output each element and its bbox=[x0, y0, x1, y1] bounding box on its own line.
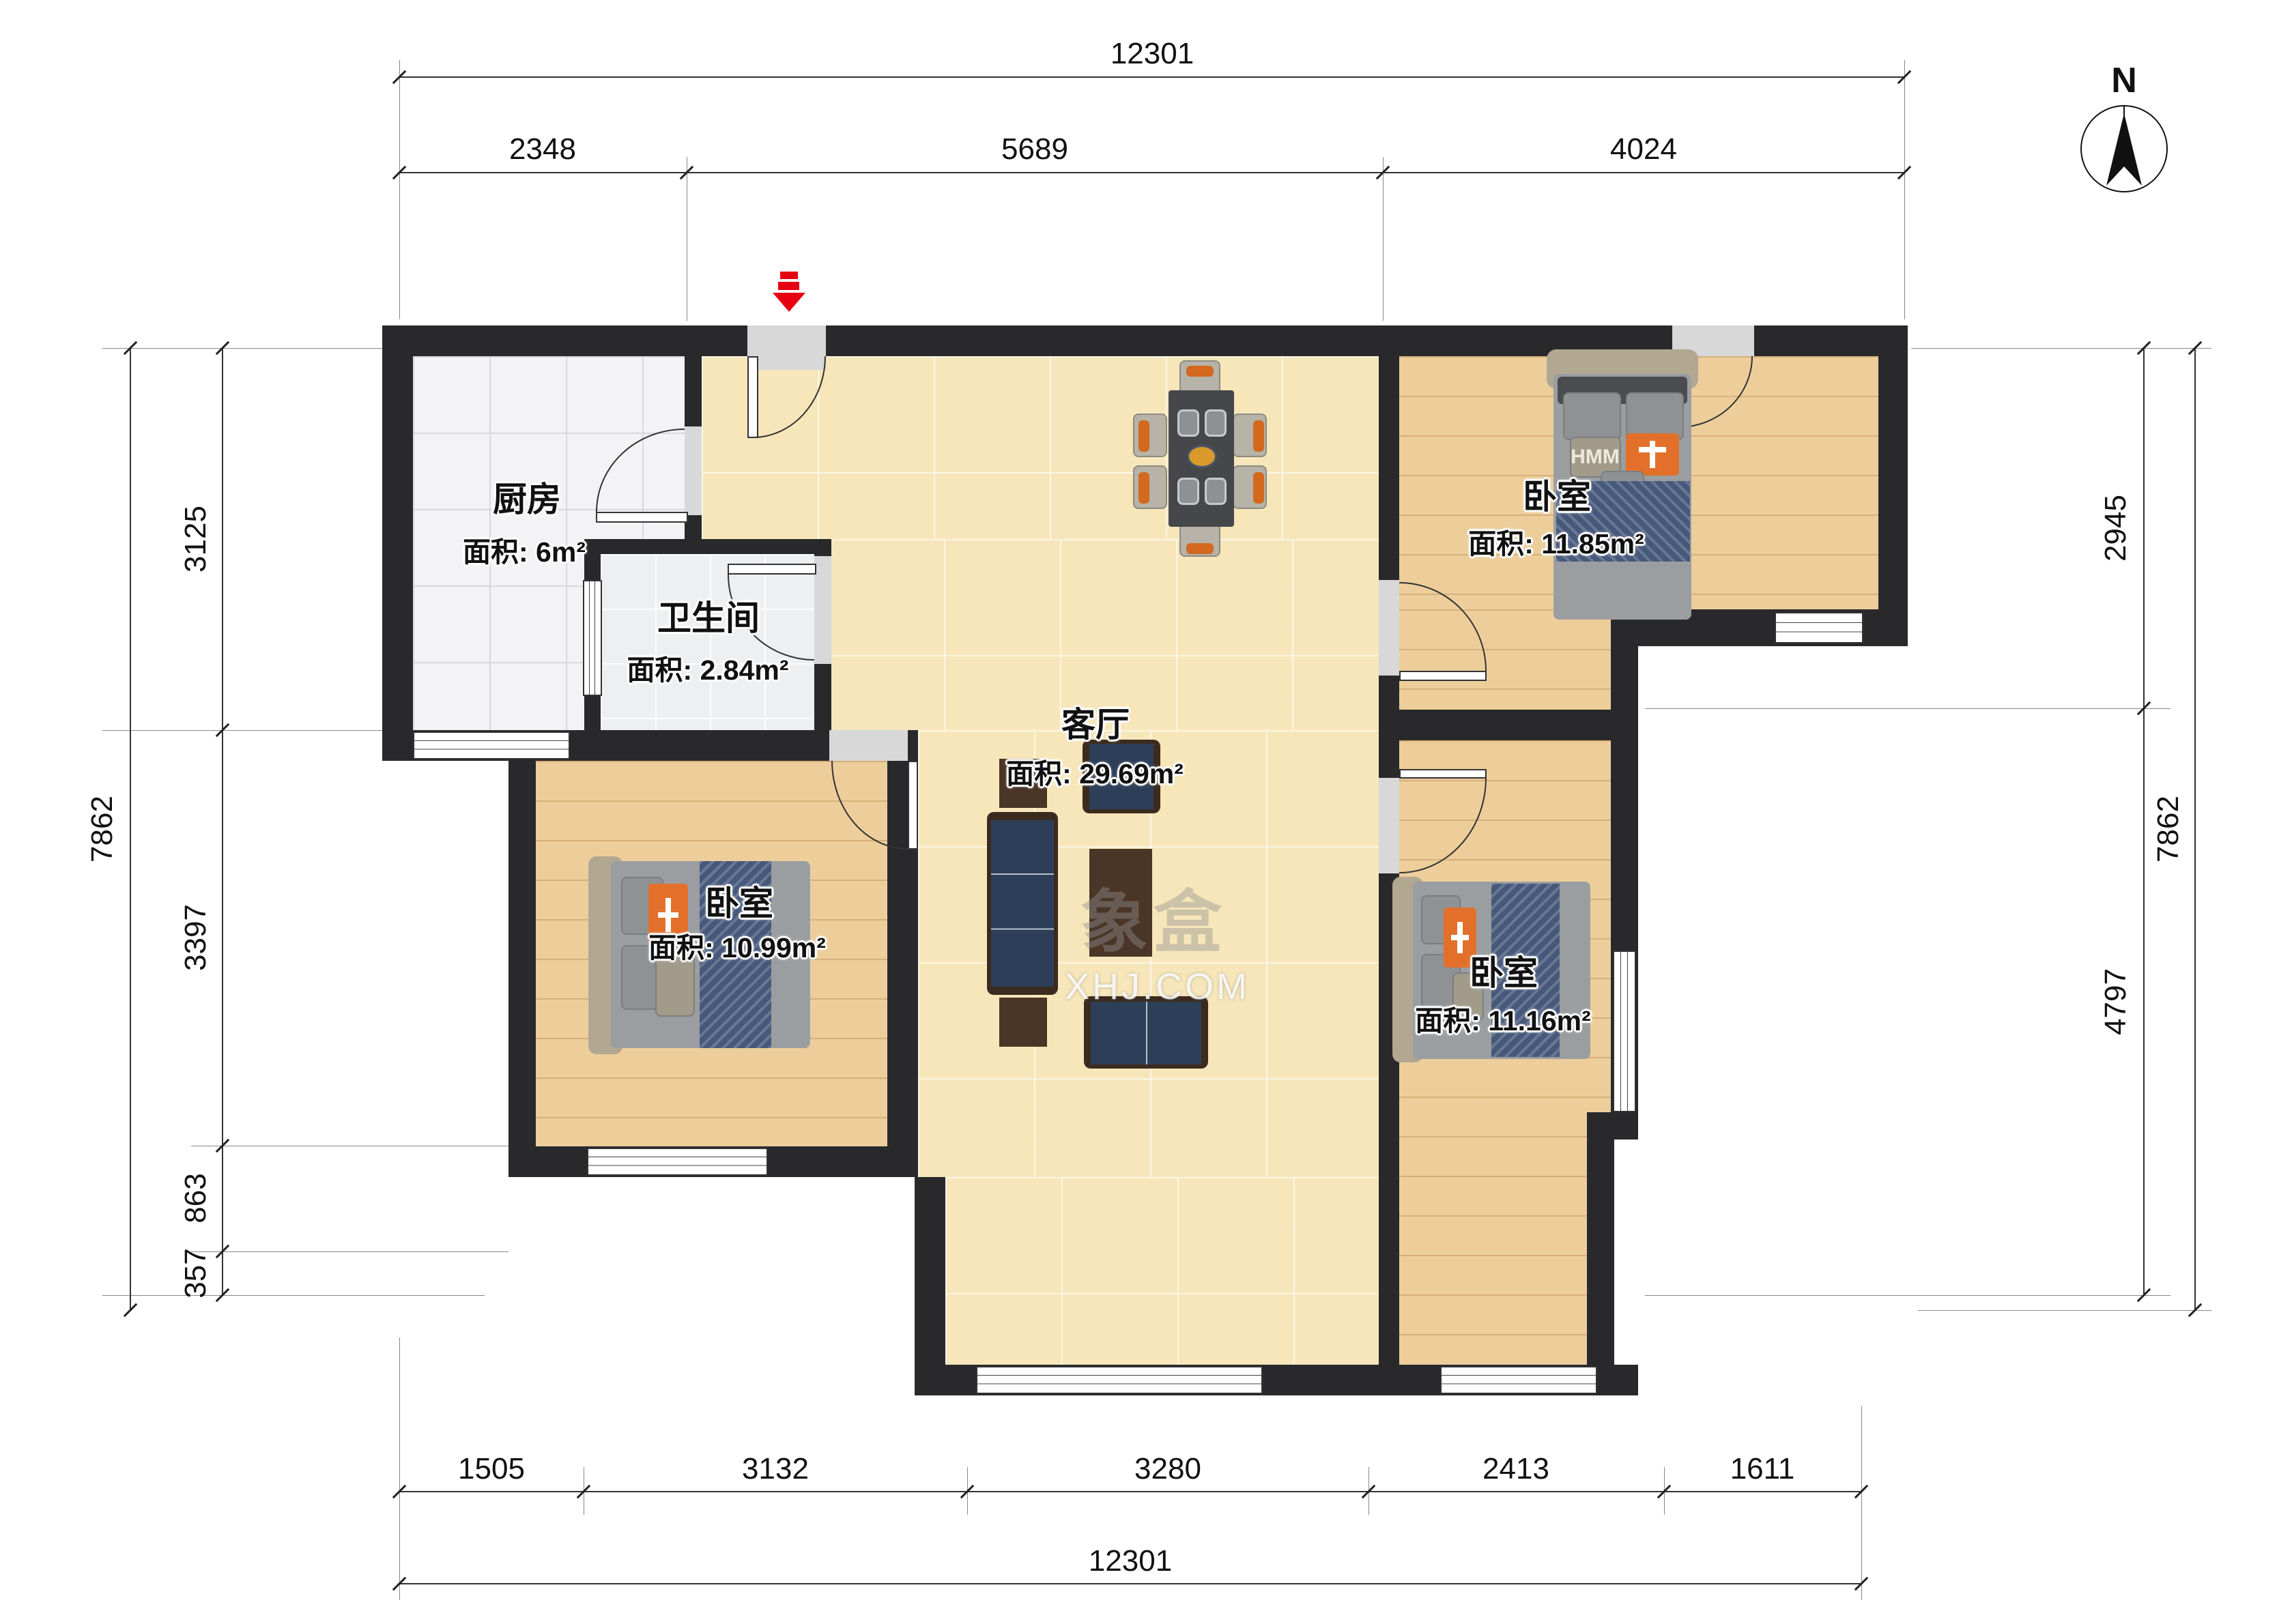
dim-right-seg1: 4797 bbox=[2099, 968, 2133, 1035]
kitchen-door-opening bbox=[685, 426, 702, 515]
dim-left-seg2: 863 bbox=[179, 1173, 213, 1223]
kitchen-window bbox=[413, 731, 570, 759]
bathroom-area: 面积: 2.84m² bbox=[627, 647, 789, 688]
bedroom-left-label: 卧室 bbox=[705, 876, 773, 925]
dining-food bbox=[1189, 447, 1215, 466]
sofa-3seat bbox=[991, 820, 1054, 987]
dim-bottom-seg0: 1505 bbox=[458, 1452, 525, 1486]
bedroom-tr-door-leaf bbox=[1399, 671, 1487, 681]
dim-right-seg0: 2945 bbox=[2099, 495, 2133, 562]
bedroom-br-door-opening bbox=[1379, 778, 1399, 873]
bathroom-door-leaf bbox=[728, 564, 816, 575]
living-label: 客厅 bbox=[1061, 697, 1130, 746]
living-floor-south bbox=[945, 1177, 1379, 1365]
bedroom-tr-door-opening bbox=[1379, 580, 1399, 676]
dim-left-seg3: 357 bbox=[179, 1248, 213, 1298]
kitchen-label: 厨房 bbox=[493, 472, 561, 521]
dim-bottom-seg3: 2413 bbox=[1482, 1452, 1549, 1486]
dim-bottom-seg1: 3132 bbox=[742, 1452, 809, 1486]
dim-top-seg1: 5689 bbox=[1001, 132, 1068, 166]
wall-bedroom-left-west bbox=[508, 761, 536, 1177]
bedroom-tr-label: 卧室 bbox=[1523, 469, 1591, 519]
bedroom-br-area: 面积: 11.16m² bbox=[1415, 998, 1591, 1039]
dim-top-total: 12301 bbox=[1111, 37, 1194, 71]
north-arrow-icon bbox=[2079, 104, 2169, 194]
dim-top-seg2: 4024 bbox=[1610, 132, 1677, 166]
bedroom-left-door-leaf bbox=[908, 761, 918, 850]
wall-bedroom-tr-east bbox=[1878, 325, 1908, 646]
bathroom-label: 卫生间 bbox=[657, 591, 760, 640]
living-area: 面积: 29.69m² bbox=[1006, 751, 1184, 792]
wall-bedroom-tr-step-v bbox=[1611, 609, 1638, 740]
bedroom-br-south-window bbox=[1440, 1366, 1597, 1394]
dim-top-seg0: 2348 bbox=[509, 132, 576, 166]
north-label: N bbox=[2111, 60, 2137, 101]
sofa-2seat bbox=[1091, 1002, 1201, 1064]
wall-living-east bbox=[1379, 356, 1399, 1395]
kitchen-area: 面积: 6m² bbox=[463, 529, 586, 570]
bedroom-left-door-opening bbox=[829, 730, 908, 761]
dim-bottom-seg4: 1611 bbox=[1730, 1452, 1795, 1486]
bedroom-tr-area: 面积: 11.85m² bbox=[1468, 521, 1644, 562]
kitchen-bath-interior-window bbox=[583, 580, 602, 696]
wall-left bbox=[382, 325, 413, 761]
wall-between-right-bedrooms bbox=[1379, 710, 1638, 740]
dim-left-seg0: 3125 bbox=[179, 506, 213, 572]
bedroom-br-label: 卧室 bbox=[1470, 946, 1538, 995]
wall-bedroom-br-step bbox=[1587, 1112, 1638, 1140]
wall-bedroom-br-east-lower bbox=[1587, 1137, 1614, 1395]
wall-bathroom-top bbox=[584, 539, 831, 554]
bedroom-left-window bbox=[587, 1148, 768, 1176]
dim-bottom-seg2: 3280 bbox=[1134, 1452, 1201, 1486]
bedroom-left-area: 面积: 10.99m² bbox=[648, 925, 826, 966]
dim-right-total: 7862 bbox=[2151, 796, 2186, 862]
dim-bottom-total: 12301 bbox=[1089, 1544, 1172, 1578]
bedroom-br-east-window bbox=[1613, 951, 1636, 1112]
dim-left-total: 7862 bbox=[85, 796, 119, 862]
dim-left-seg1: 3397 bbox=[179, 904, 213, 971]
coffee-table bbox=[1089, 849, 1152, 957]
bedroom-tr-step-window bbox=[1775, 612, 1863, 643]
wall-living-west-stub bbox=[915, 1177, 945, 1395]
bedroom-br-door-leaf bbox=[1399, 769, 1487, 779]
living-south-window bbox=[976, 1366, 1263, 1394]
floor-plan: HMM 厨房 面积: 6m² 卫生间 面积: 2.84m² 客厅 面积: 29.… bbox=[0, 0, 2292, 1624]
bathroom-door-opening bbox=[814, 556, 831, 664]
kitchen-door-leaf bbox=[596, 512, 688, 523]
